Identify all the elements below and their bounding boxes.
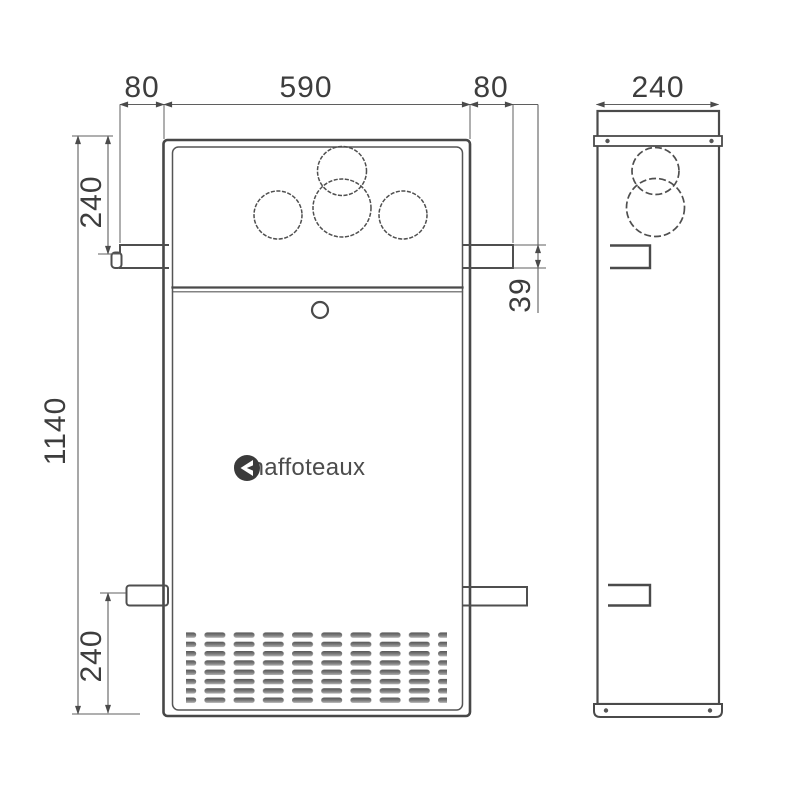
dim-label-80-left: 80 — [124, 73, 159, 103]
brand-logo: Chaffoteaux — [233, 454, 365, 482]
dim-label-240-lower: 240 — [77, 629, 107, 682]
bracket-bottom-right — [463, 587, 527, 606]
side-body — [598, 111, 720, 704]
dim-label-80-right: 80 — [473, 73, 508, 103]
chaffoteaux-chevron-icon — [233, 454, 261, 482]
drawing-linework — [0, 0, 800, 800]
screw-icon — [709, 139, 713, 143]
bracket-bottom-left — [127, 586, 169, 606]
front-view — [112, 140, 528, 716]
screw-icon — [708, 708, 712, 712]
screw-icon — [605, 139, 609, 143]
dim-label-39: 39 — [506, 277, 536, 312]
dim-label-240-side: 240 — [631, 73, 684, 103]
side-view — [594, 111, 722, 717]
dim-label-590: 590 — [279, 73, 332, 103]
bracket-top-left-cap — [112, 253, 122, 269]
side-top-flange — [594, 136, 722, 146]
dim-label-240-upper: 240 — [77, 175, 107, 228]
side-bottom-flange — [594, 704, 722, 717]
bracket-top-left — [120, 245, 168, 268]
dim-label-1140: 1140 — [41, 397, 71, 466]
screw-icon — [604, 708, 608, 712]
ventilation-louvers — [186, 630, 447, 705]
sight-hole — [312, 302, 328, 318]
technical-drawing-canvas: 80 590 80 240 240 1140 240 39 Chaffoteau… — [0, 0, 800, 800]
